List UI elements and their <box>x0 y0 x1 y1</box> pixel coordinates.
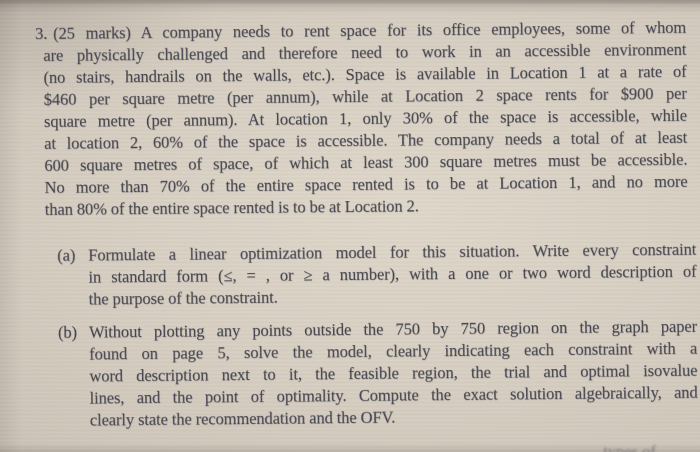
question-part-a: (a) Formulate a linear optimization mode… <box>88 239 697 311</box>
question-body: (25 marks) A company needs to rent space… <box>43 17 688 221</box>
page-text: 3. (25 marks) A company needs to rent sp… <box>0 17 700 433</box>
part-a-body: Formulate a linear optimization model fo… <box>88 239 697 311</box>
text-line: the purpose of the constraint. <box>89 283 697 311</box>
question-part-b: (b) Without plotting any points outside … <box>89 316 698 432</box>
exam-page-photo: 3. (25 marks) A company needs to rent sp… <box>0 0 700 452</box>
part-b-label: (b) <box>58 322 77 344</box>
question-number: 3. <box>35 23 47 45</box>
part-b-body: Without plotting any points outside the … <box>89 316 698 432</box>
part-a-label: (a) <box>57 245 75 267</box>
cutoff-next-line-fragment: types of <box>400 441 656 452</box>
question-3: 3. (25 marks) A company needs to rent sp… <box>43 17 688 221</box>
text-line: clearly state the recommendation and the… <box>90 404 698 432</box>
